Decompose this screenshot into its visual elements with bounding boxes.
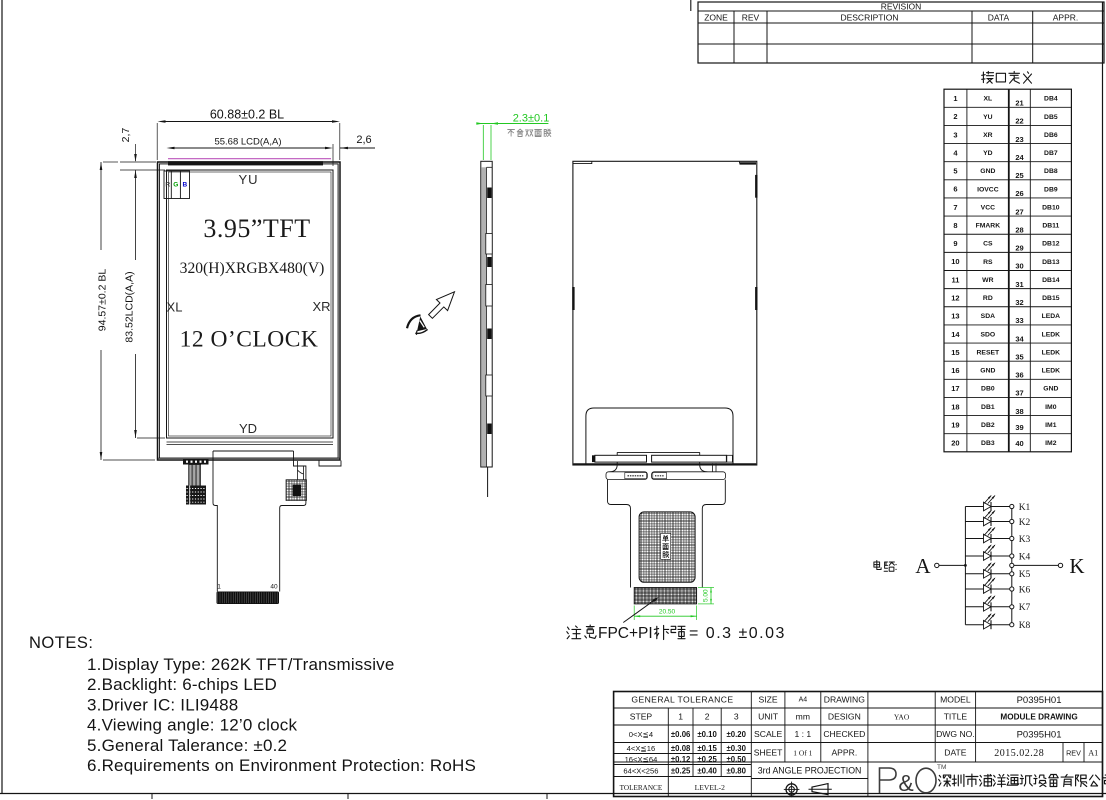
svg-text:2: 2 <box>705 712 710 722</box>
svg-text:DRAWING: DRAWING <box>824 695 866 705</box>
svg-text:29: 29 <box>1015 244 1023 253</box>
svg-text:LEDA: LEDA <box>1042 313 1061 320</box>
svg-text:DB4: DB4 <box>1044 96 1058 103</box>
svg-text:11: 11 <box>951 275 959 284</box>
svg-text:XR: XR <box>312 299 330 314</box>
svg-text:GND: GND <box>1043 386 1058 393</box>
svg-text:IM2: IM2 <box>1045 440 1057 447</box>
svg-text:IM0: IM0 <box>1045 404 1057 411</box>
svg-text:APPR.: APPR. <box>1053 13 1079 23</box>
svg-text:P0395H01: P0395H01 <box>1017 730 1062 741</box>
svg-text:±0.40: ±0.40 <box>697 767 717 776</box>
svg-text:K7: K7 <box>1019 603 1031 613</box>
svg-text:33: 33 <box>1015 316 1023 325</box>
svg-text:6: 6 <box>953 185 957 194</box>
svg-text:RS: RS <box>983 259 993 266</box>
svg-text:18: 18 <box>951 402 959 411</box>
svg-text:39: 39 <box>1015 423 1023 432</box>
svg-text:4<X≦16: 4<X≦16 <box>627 744 656 753</box>
svg-text:±0.06: ±0.06 <box>671 730 691 739</box>
svg-text:RESET: RESET <box>977 349 1001 356</box>
svg-text:34: 34 <box>1015 334 1024 343</box>
svg-text:30: 30 <box>1015 262 1023 271</box>
svg-text:K5: K5 <box>1019 570 1031 580</box>
svg-text:ZONE: ZONE <box>704 13 728 23</box>
svg-text:DB2: DB2 <box>981 422 995 429</box>
svg-text:R: R <box>165 182 170 189</box>
svg-text:1 : 1: 1 : 1 <box>794 729 811 739</box>
svg-text:A: A <box>915 554 931 578</box>
svg-text:XL: XL <box>167 300 183 315</box>
svg-text:20.50: 20.50 <box>659 609 676 616</box>
svg-text:DB6: DB6 <box>1044 132 1058 139</box>
svg-text:28: 28 <box>1015 225 1023 234</box>
svg-text:SHEET: SHEET <box>754 748 783 758</box>
svg-text:K: K <box>1069 554 1084 578</box>
svg-text:55.68 LCD(A,A): 55.68 LCD(A,A) <box>214 137 281 148</box>
svg-text:FMARK: FMARK <box>976 223 1001 230</box>
svg-text:A4: A4 <box>799 697 808 704</box>
svg-text:35: 35 <box>1015 352 1023 361</box>
svg-text:XL: XL <box>984 96 993 103</box>
svg-text:±0.15: ±0.15 <box>697 744 717 753</box>
svg-text:mm: mm <box>796 712 810 722</box>
svg-text:LEDK: LEDK <box>1042 349 1061 356</box>
svg-text:14: 14 <box>951 330 960 339</box>
svg-text:APPR.: APPR. <box>831 748 857 758</box>
svg-text:3: 3 <box>734 712 739 722</box>
svg-text:GND: GND <box>980 368 995 375</box>
svg-text:8: 8 <box>953 221 957 230</box>
svg-text:±0.25: ±0.25 <box>697 755 717 764</box>
svg-text:CHECKED: CHECKED <box>823 729 865 739</box>
svg-text:SCALE: SCALE <box>754 729 782 739</box>
svg-text:FPC+PI: FPC+PI <box>598 625 653 642</box>
svg-text:32: 32 <box>1015 298 1023 307</box>
svg-text:±0.50: ±0.50 <box>727 755 747 764</box>
svg-text:DATE: DATE <box>944 748 967 758</box>
svg-text:64<X<256: 64<X<256 <box>623 767 658 776</box>
svg-text:REV: REV <box>1066 749 1081 758</box>
svg-text:K6: K6 <box>1019 585 1031 595</box>
svg-text:5.00: 5.00 <box>703 589 710 602</box>
svg-text:3.Driver IC: ILI9488: 3.Driver IC: ILI9488 <box>87 695 238 714</box>
svg-text:40: 40 <box>270 584 278 591</box>
svg-text:2,7: 2,7 <box>120 128 132 143</box>
svg-text:UNIT: UNIT <box>758 712 779 722</box>
svg-text:XR: XR <box>983 132 993 139</box>
svg-text:24: 24 <box>1015 153 1024 162</box>
svg-text:RD: RD <box>983 295 993 302</box>
svg-text:2: 2 <box>953 112 957 121</box>
svg-text:2.Backlight: 6-chips LED: 2.Backlight: 6-chips LED <box>87 675 277 694</box>
svg-text:16<X≦64: 16<X≦64 <box>625 755 658 764</box>
svg-text:5: 5 <box>953 167 957 176</box>
svg-text:±0.25: ±0.25 <box>671 767 691 776</box>
svg-text:5.General Talerance: ±0.2: 5.General Talerance: ±0.2 <box>87 736 287 755</box>
svg-text:320(H)XRGBX480(V): 320(H)XRGBX480(V) <box>180 260 325 277</box>
svg-text:G: G <box>173 182 178 189</box>
svg-text:3rd ANGLE PROJECTION: 3rd ANGLE PROJECTION <box>758 766 862 776</box>
svg-text:SDA: SDA <box>981 313 995 320</box>
svg-text:YU: YU <box>983 114 993 121</box>
svg-text:= 0.3 ±0.03: = 0.3 ±0.03 <box>689 625 786 642</box>
svg-text:NOTES:: NOTES: <box>29 634 93 652</box>
svg-text:SIZE: SIZE <box>759 695 778 705</box>
svg-text:60.88±0.2 BL: 60.88±0.2 BL <box>210 108 284 122</box>
svg-text:4.Viewing angle: 12’0 clock: 4.Viewing angle: 12’0 clock <box>87 716 297 735</box>
svg-text:9: 9 <box>953 239 957 248</box>
svg-text:20: 20 <box>951 439 959 448</box>
svg-text:27: 27 <box>1015 207 1023 216</box>
svg-text:B: B <box>183 182 188 189</box>
svg-text:K3: K3 <box>1019 535 1031 545</box>
svg-text:DB5: DB5 <box>1044 114 1058 121</box>
svg-text:MODEL: MODEL <box>940 695 971 705</box>
svg-text:±0.20: ±0.20 <box>727 730 747 739</box>
svg-text:13: 13 <box>951 312 959 321</box>
svg-text:K1: K1 <box>1019 503 1031 513</box>
svg-text:±0.30: ±0.30 <box>727 744 747 753</box>
svg-text:MODULE DRAWING: MODULE DRAWING <box>1000 713 1077 722</box>
svg-text:83.52LCD(A,A): 83.52LCD(A,A) <box>124 271 136 342</box>
svg-text:2015.02.28: 2015.02.28 <box>994 748 1044 759</box>
svg-text:TM: TM <box>937 764 946 771</box>
svg-text:WR: WR <box>982 277 993 284</box>
svg-text:38: 38 <box>1015 407 1023 416</box>
svg-text:36: 36 <box>1015 371 1023 380</box>
svg-text:DB11: DB11 <box>1042 223 1059 230</box>
svg-text:12 O’CLOCK: 12 O’CLOCK <box>180 327 319 353</box>
svg-text:LEVEL-2: LEVEL-2 <box>695 783 726 792</box>
svg-text:±0.10: ±0.10 <box>697 730 717 739</box>
svg-text:DB3: DB3 <box>981 440 995 447</box>
svg-text:DATA: DATA <box>988 13 1010 23</box>
svg-text:DB12: DB12 <box>1042 241 1060 248</box>
svg-text:DB7: DB7 <box>1044 150 1058 157</box>
svg-text:K2: K2 <box>1019 518 1031 528</box>
svg-text:31: 31 <box>1015 280 1023 289</box>
svg-text:YAO: YAO <box>894 713 910 722</box>
svg-text:DESCRIPTION: DESCRIPTION <box>840 13 898 23</box>
svg-text:DESIGN: DESIGN <box>828 712 861 722</box>
svg-text:1: 1 <box>953 94 957 103</box>
svg-text:A1: A1 <box>1088 749 1098 758</box>
svg-text:23: 23 <box>1015 135 1023 144</box>
svg-text:LEDK: LEDK <box>1042 368 1061 375</box>
svg-text:21: 21 <box>1015 99 1023 108</box>
svg-text:K8: K8 <box>1019 621 1031 631</box>
svg-text:CS: CS <box>983 241 993 248</box>
svg-text:19: 19 <box>951 420 959 429</box>
svg-text:IM1: IM1 <box>1045 422 1057 429</box>
svg-text:DB15: DB15 <box>1042 295 1060 302</box>
svg-text:GENERAL TOLERANCE: GENERAL TOLERANCE <box>631 695 733 705</box>
svg-text:2,6: 2,6 <box>356 134 371 146</box>
svg-text:DB13: DB13 <box>1042 259 1060 266</box>
svg-text:VCC: VCC <box>981 204 995 211</box>
svg-text:DB14: DB14 <box>1042 277 1060 284</box>
svg-text:±0.12: ±0.12 <box>671 755 691 764</box>
svg-text:DB0: DB0 <box>981 386 995 393</box>
svg-text::: : <box>894 561 897 573</box>
svg-text:25: 25 <box>1015 171 1023 180</box>
svg-text:K4: K4 <box>1019 552 1031 562</box>
svg-text:2.3±0.1: 2.3±0.1 <box>513 113 550 125</box>
svg-text:12: 12 <box>951 293 959 302</box>
svg-text:YU: YU <box>238 172 258 187</box>
svg-text:10: 10 <box>951 257 959 266</box>
svg-text:REV: REV <box>742 13 760 23</box>
svg-text:37: 37 <box>1015 389 1023 398</box>
svg-text:±0.08: ±0.08 <box>671 744 691 753</box>
svg-text:1: 1 <box>217 584 221 591</box>
svg-text:1.Display Type: 262K TFT/Trans: 1.Display Type: 262K TFT/Transmissive <box>87 655 395 674</box>
svg-text:GND: GND <box>980 168 995 175</box>
svg-text:3: 3 <box>953 130 957 139</box>
svg-text:TITLE: TITLE <box>944 712 968 722</box>
svg-text:DB10: DB10 <box>1042 204 1060 211</box>
svg-text:YD: YD <box>239 421 257 436</box>
svg-text:17: 17 <box>951 384 959 393</box>
svg-text:STEP: STEP <box>630 712 653 722</box>
svg-text:LEDK: LEDK <box>1042 331 1061 338</box>
svg-text:4: 4 <box>953 148 958 157</box>
svg-text:P0395H01: P0395H01 <box>1017 695 1062 706</box>
svg-text:&: & <box>898 770 913 796</box>
svg-text:94.57±0.2 BL: 94.57±0.2 BL <box>97 269 109 332</box>
svg-text:16: 16 <box>951 366 959 375</box>
svg-text:7: 7 <box>953 203 957 212</box>
svg-text:±0.80: ±0.80 <box>727 767 747 776</box>
svg-text:IOVCC: IOVCC <box>977 186 999 193</box>
svg-text:15: 15 <box>951 348 959 357</box>
svg-text:6.Requirements on Environment: 6.Requirements on Environment Protection… <box>87 756 476 775</box>
svg-text:1 Of 1: 1 Of 1 <box>793 749 812 758</box>
svg-text:SDO: SDO <box>980 331 995 338</box>
svg-text:0<X≦4: 0<X≦4 <box>629 730 653 739</box>
svg-text:40: 40 <box>1015 439 1023 448</box>
svg-text:DB1: DB1 <box>981 404 995 411</box>
svg-text:YD: YD <box>983 150 993 157</box>
svg-text:DB9: DB9 <box>1044 186 1058 193</box>
svg-text:26: 26 <box>1015 189 1023 198</box>
svg-text:1: 1 <box>678 712 683 722</box>
svg-text:3.95”TFT: 3.95”TFT <box>203 214 310 243</box>
svg-text:DWG NO.: DWG NO. <box>936 729 975 739</box>
svg-text:REVISION: REVISION <box>881 2 922 12</box>
svg-text:TOLERANCE: TOLERANCE <box>620 784 663 792</box>
svg-text:22: 22 <box>1015 117 1023 126</box>
svg-text:DB8: DB8 <box>1044 168 1058 175</box>
